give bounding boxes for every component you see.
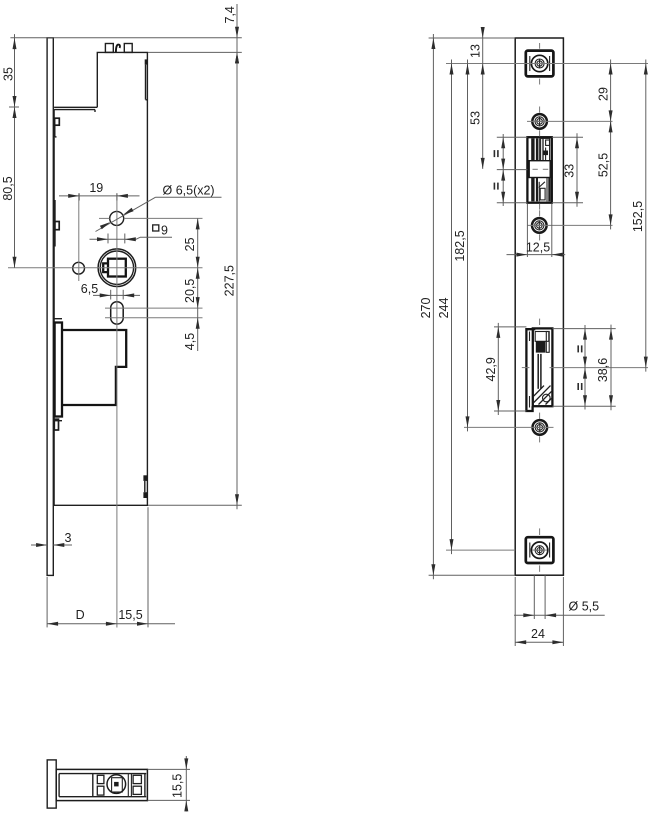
svg-text:Ø 5,5: Ø 5,5 [569,600,600,614]
svg-text:29: 29 [596,87,610,101]
svg-text:53: 53 [468,111,482,125]
svg-text:227,5: 227,5 [222,265,236,296]
svg-text:42,9: 42,9 [484,357,498,381]
svg-text:182,5: 182,5 [453,230,467,261]
svg-text:12,5: 12,5 [526,241,550,255]
svg-text:6,5: 6,5 [81,282,98,296]
svg-text:D: D [76,608,85,622]
svg-text:7,4: 7,4 [223,6,237,23]
svg-text:3: 3 [65,531,72,545]
svg-text:33: 33 [563,164,577,178]
svg-text:15,5: 15,5 [170,774,184,798]
svg-text:80,5: 80,5 [1,176,15,200]
svg-text:35: 35 [1,67,15,81]
svg-text:9: 9 [161,223,168,237]
svg-text:Ø 6,5(x2): Ø 6,5(x2) [163,183,215,197]
svg-text:244: 244 [437,298,451,319]
svg-text:19: 19 [89,181,103,195]
svg-text:20,5: 20,5 [183,279,197,303]
svg-text:270: 270 [419,298,433,319]
svg-text:52,5: 52,5 [596,153,610,177]
svg-text:13: 13 [468,44,482,58]
svg-text:15,5: 15,5 [118,608,142,622]
svg-text:25: 25 [183,237,197,251]
svg-text:4,5: 4,5 [183,333,197,350]
svg-text:24: 24 [531,627,545,641]
svg-text:152,5: 152,5 [631,201,645,232]
svg-text:38,6: 38,6 [596,358,610,382]
